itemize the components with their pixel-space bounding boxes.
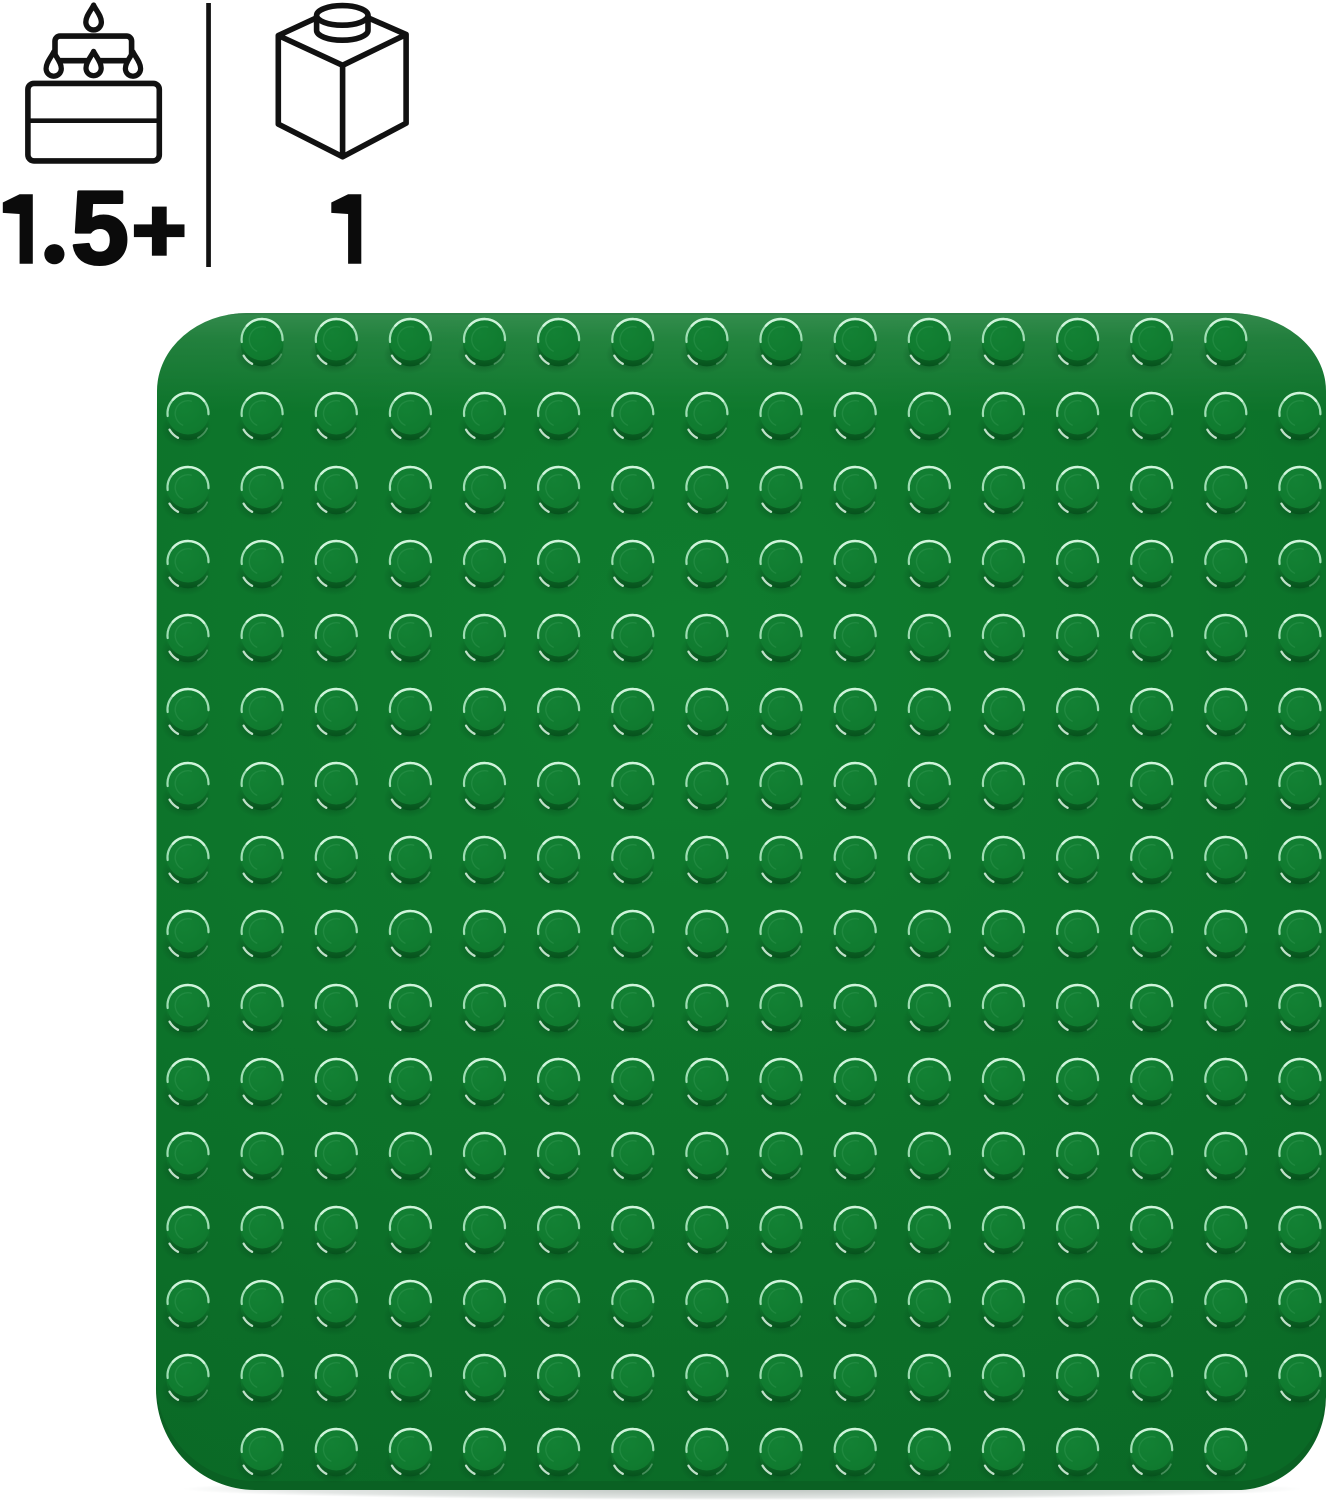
svg-text:5: 5	[71, 171, 129, 287]
